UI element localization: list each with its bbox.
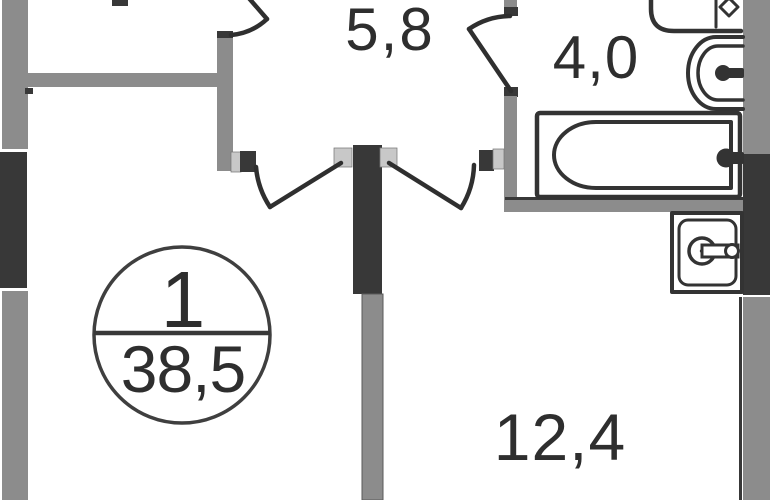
jamb-dark-left [240,151,256,172]
washbasin-faucet-head [715,65,731,81]
washbasin-icon [688,37,744,109]
bathroom-area-label: 4,0 [553,24,639,91]
bathtub-outer [537,113,740,197]
bathtub-inner [554,122,731,188]
jamb-light-left [231,152,241,172]
door-entry-leaf [228,0,267,19]
door-room-left-leaf [270,163,341,207]
door-bathroom-swing-arc [469,16,510,29]
wall-hall-left [217,38,233,171]
wall-entry-horizontal [27,73,218,87]
door-room-left-swing-arc [256,167,270,207]
room-area-label: 12,4 [494,400,626,474]
door-room-right [389,163,474,208]
door-room-right-swing-arc [461,165,474,208]
jamb-light-right [493,149,504,169]
wall-central-lower [362,294,383,500]
wall-right-upper [743,0,770,154]
hall-area-label: 5,8 [345,0,434,63]
door-entry-swing-arc [231,19,267,35]
wall-bath-bottom [505,200,746,212]
wall-left-lower [2,291,28,500]
wall-left-upper [2,0,28,149]
walls [0,0,770,500]
wall-entry-tick [25,88,33,94]
room-labels: 5,8 4,0 12,4 [345,0,639,474]
floorplan-canvas: 1 38,5 5,8 4,0 12,4 [0,0,770,500]
jamb-top-edge-stub [112,0,128,6]
washing-machine-knob [726,245,739,258]
wall-right-lower [743,297,770,500]
door-room-right-leaf [389,163,461,208]
wall-left-dark [0,152,27,288]
wall-central-dark [353,145,382,294]
sink-counter-icon [651,0,741,31]
floorplan: 1 38,5 5,8 4,0 12,4 [0,0,770,500]
sink-drain-diamond [720,0,738,16]
wall-bath-left [504,96,517,212]
unit-number-label: 1 [161,255,206,344]
total-area-label: 38,5 [121,332,245,406]
bathtub-faucet-head [717,149,736,168]
door-bathroom [469,16,511,91]
bathtub-icon [537,113,744,197]
unit-badge: 1 38,5 [94,247,270,423]
wall-right-inner-line [739,297,742,500]
washing-machine-icon [672,213,742,292]
door-bathroom-leaf [469,29,511,91]
wall-bath-top-stub [504,0,517,8]
door-entry [228,0,267,35]
door-room-left [256,163,341,207]
wall-right-dark [743,154,770,295]
jamb-dark-right [479,150,494,171]
